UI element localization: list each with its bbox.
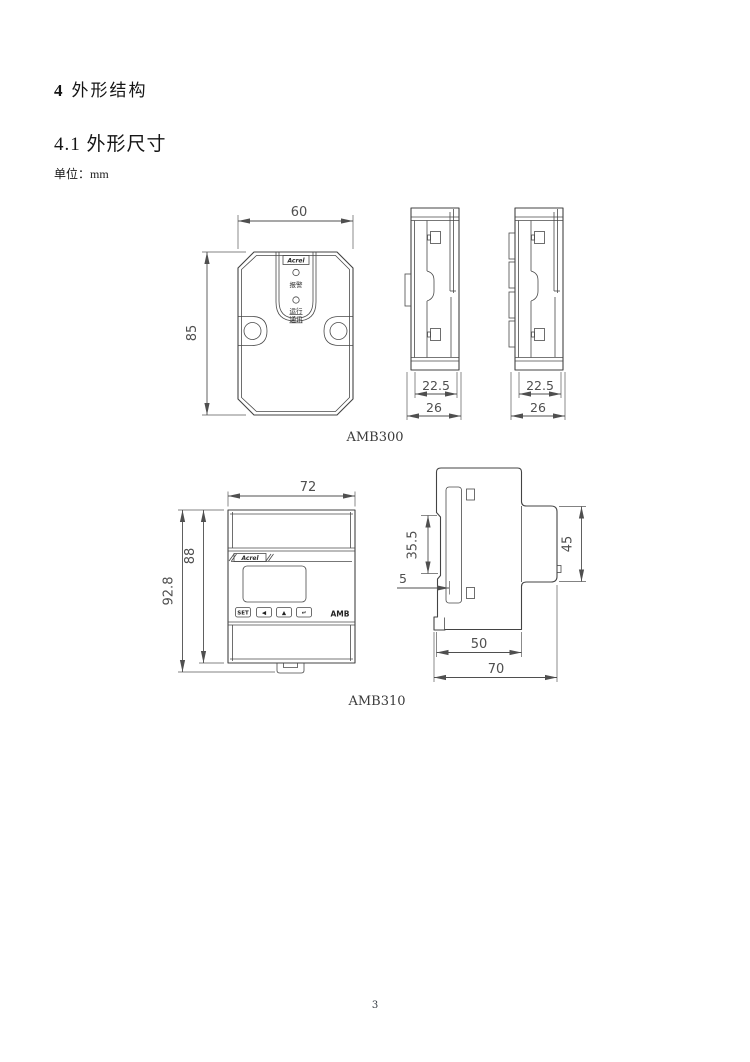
- section-title: 外形结构: [72, 81, 148, 100]
- amb310-logo: Acrel: [240, 555, 259, 562]
- left-button-icon: ◀: [262, 611, 267, 617]
- amb300-side1-dimensions: 22.5 26: [407, 372, 461, 420]
- amb310-slot-height-dim: 35.5: [406, 531, 421, 560]
- run-comm-led-icon: [293, 297, 299, 303]
- comm-led-label: 通讯: [290, 315, 304, 324]
- alarm-led-icon: [293, 269, 299, 275]
- amb310-front-dimensions: 72 92.8 88: [162, 480, 356, 672]
- amb310-dimension-drawing: Acrel SET ◀ ▲ ↵ AMB: [160, 452, 600, 708]
- amb300-width-dim: 60: [291, 205, 308, 220]
- amb310-side-dimensions: 35.5 5 45 50 70: [397, 507, 586, 683]
- amb300-side-view-2: [509, 208, 563, 370]
- lcd-display: [243, 566, 306, 602]
- amb310-side-view: [434, 468, 561, 630]
- page-number: 3: [0, 1000, 750, 1011]
- unit-note: 单位：mm: [54, 165, 109, 182]
- amb300-side1-outer-width-dim: 26: [426, 400, 442, 415]
- amb310-offset-dim: 5: [399, 571, 407, 586]
- run-led-label: 运行: [290, 306, 304, 315]
- amb300-model-label: AMB300: [320, 430, 430, 445]
- up-button-icon: ▲: [282, 611, 287, 617]
- amb300-logo: Acrel: [286, 258, 305, 265]
- amb310-body-height-dim: 88: [183, 548, 198, 565]
- amb310-total-depth-dim: 70: [488, 662, 505, 677]
- mounting-hole-left: [244, 323, 261, 340]
- amb310-total-height-dim: 92.8: [162, 577, 177, 606]
- amb300-side-view-1: [405, 208, 459, 370]
- button-row: SET ◀ ▲ ↵: [236, 608, 312, 618]
- amb300-side2-outer-width-dim: 26: [530, 400, 546, 415]
- amb300-front-view: Acrel 报警 运行 通讯: [238, 252, 353, 415]
- section-heading: 4外形结构: [54, 76, 148, 101]
- set-button-label: SET: [237, 611, 249, 617]
- amb300-dimension-drawing: Acrel 报警 运行 通讯 60 85: [170, 196, 590, 450]
- amb310-protrusion-height-dim: 45: [561, 536, 576, 553]
- amb310-panel-model-text: AMB: [331, 610, 350, 619]
- amb300-side1-inner-width-dim: 22.5: [422, 378, 450, 393]
- amb310-body-depth-dim: 50: [471, 637, 488, 652]
- amb300-side2-dimensions: 22.5 26: [511, 372, 565, 420]
- amb300-side2-inner-width-dim: 22.5: [526, 378, 554, 393]
- alarm-led-label: 报警: [290, 280, 304, 289]
- section-number: 4: [54, 81, 63, 100]
- amb300-height-dim: 85: [185, 325, 200, 342]
- amb300-front-dimensions: 60 85: [185, 205, 353, 415]
- enter-button-icon: ↵: [302, 611, 307, 617]
- amb310-width-dim: 72: [300, 480, 317, 495]
- amb310-front-view: Acrel SET ◀ ▲ ↵ AMB: [228, 510, 355, 673]
- subsection-heading: 4.1 外形尺寸: [54, 129, 167, 156]
- mounting-hole-right: [330, 323, 347, 340]
- din-clip-tab: [277, 663, 304, 673]
- amb310-model-label: AMB310: [322, 694, 432, 709]
